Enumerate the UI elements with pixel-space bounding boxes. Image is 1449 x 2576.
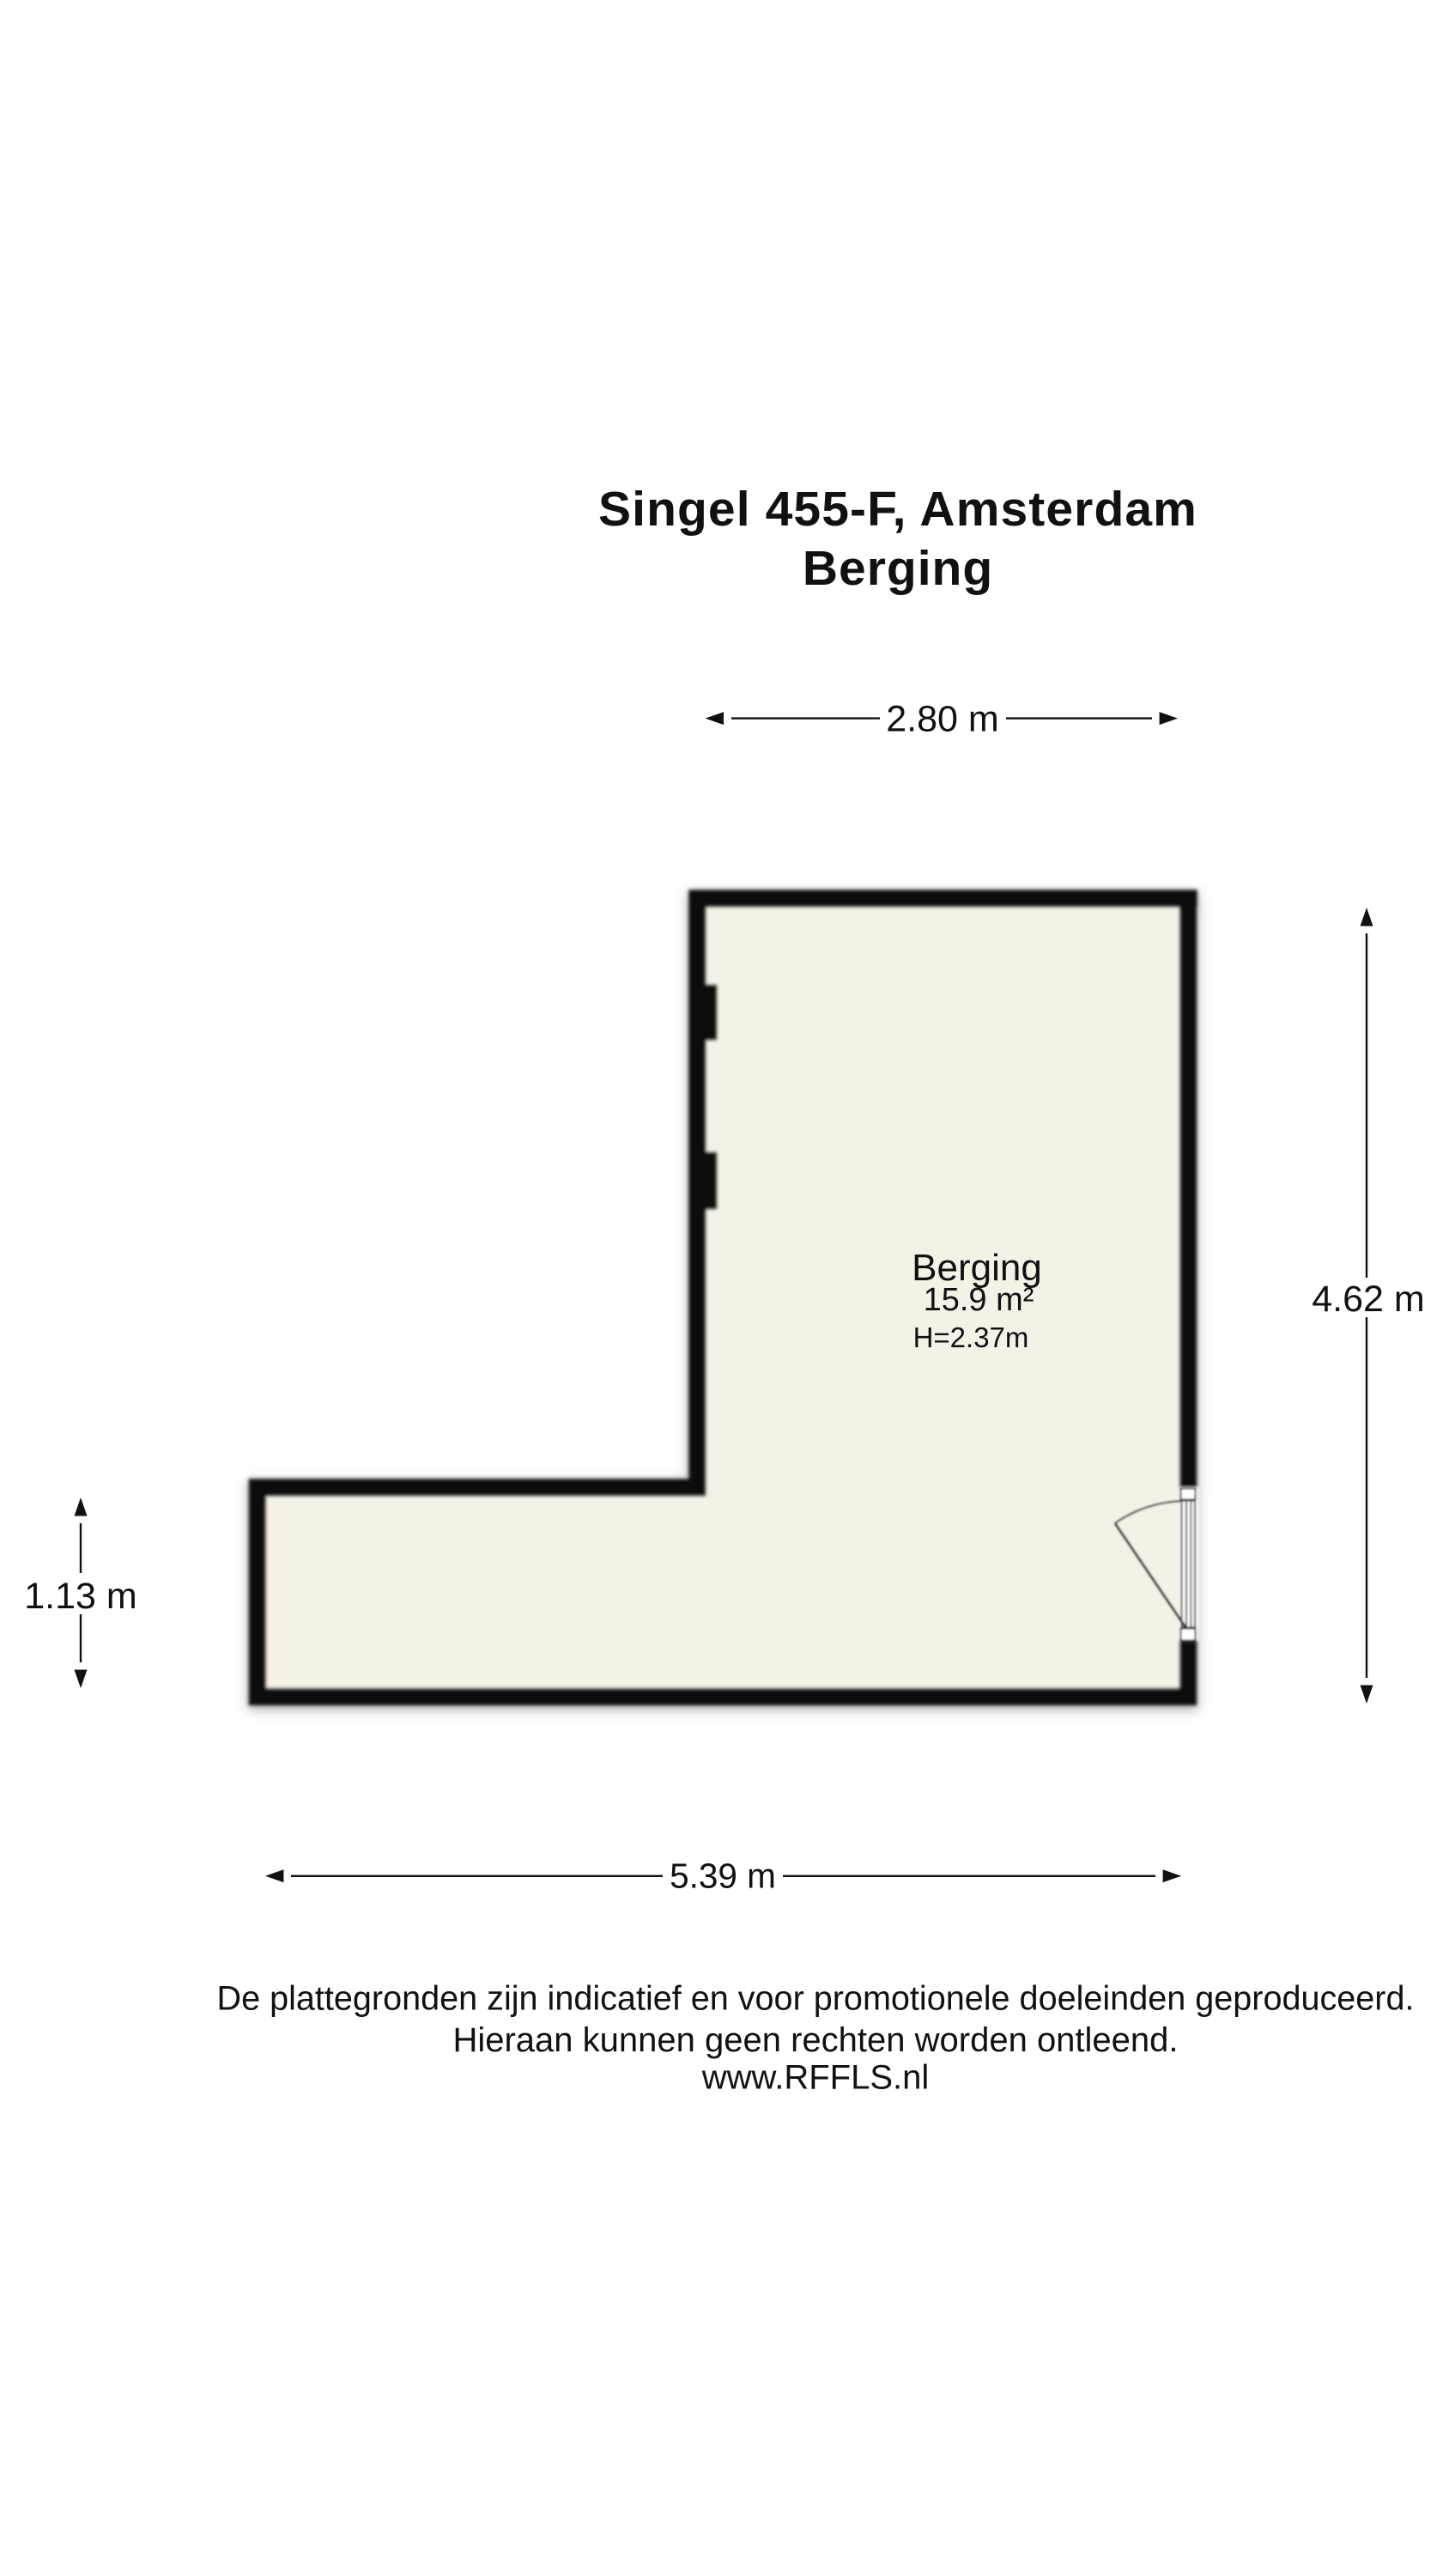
svg-text:4.62 m: 4.62 m	[1312, 1279, 1424, 1320]
svg-text:Berging: Berging	[803, 541, 993, 596]
svg-text:Singel 455-F, Amsterdam: Singel 455-F, Amsterdam	[598, 482, 1197, 537]
svg-text:Hieraan kunnen geen rechten wo: Hieraan kunnen geen rechten worden ontle…	[452, 2021, 1178, 2059]
svg-text:H=2.37m: H=2.37m	[913, 1321, 1029, 1353]
svg-text:15.9 m²: 15.9 m²	[924, 1282, 1034, 1318]
svg-text:De plattegronden zijn indicati: De plattegronden zijn indicatief en voor…	[217, 1980, 1415, 2018]
svg-text:2.80 m: 2.80 m	[886, 699, 998, 740]
svg-text:www.RFFLS.nl: www.RFFLS.nl	[701, 2059, 930, 2097]
svg-text:5.39 m: 5.39 m	[670, 1856, 776, 1896]
svg-text:1.13 m: 1.13 m	[24, 1576, 136, 1617]
